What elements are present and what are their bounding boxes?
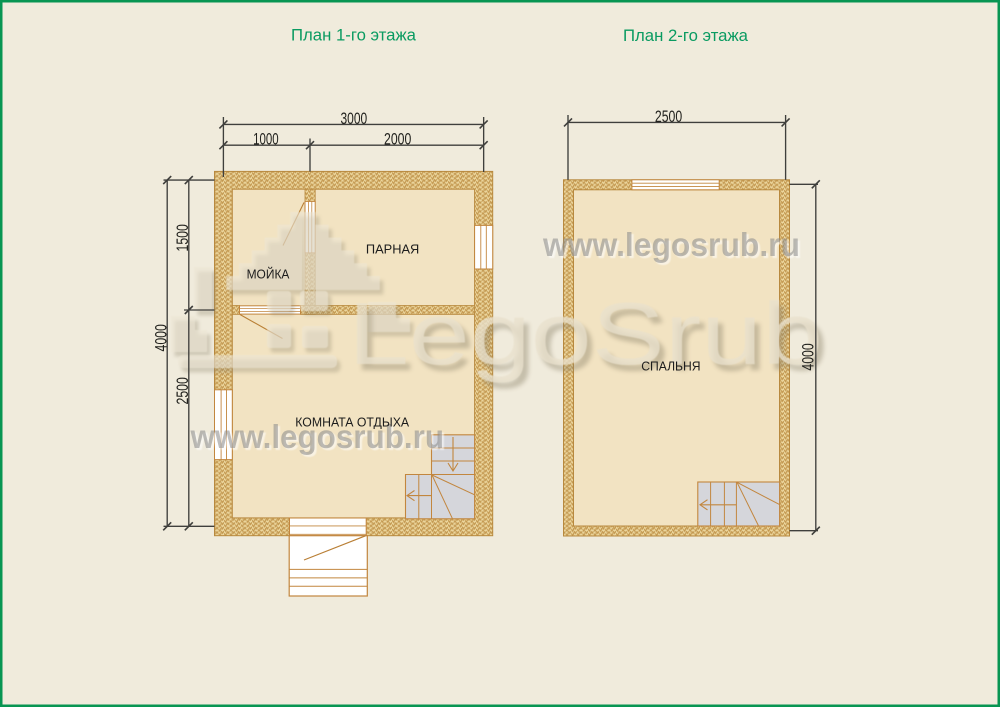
svg-text:КОМНАТА ОТДЫХА: КОМНАТА ОТДЫХА xyxy=(295,414,409,429)
svg-text:4000: 4000 xyxy=(799,343,818,370)
svg-text:1000: 1000 xyxy=(253,130,279,149)
svg-text:ПАРНАЯ: ПАРНАЯ xyxy=(366,241,419,256)
svg-text:LegoSrub: LegoSrub xyxy=(348,284,823,383)
svg-text:2500: 2500 xyxy=(655,107,682,126)
svg-text:План 2-го этажа: План 2-го этажа xyxy=(623,27,749,45)
svg-text:2000: 2000 xyxy=(384,130,411,149)
svg-text:4000: 4000 xyxy=(152,324,171,351)
svg-text:www.legosrub.ru: www.legosrub.ru xyxy=(542,226,800,263)
svg-text:2500: 2500 xyxy=(173,377,192,404)
svg-text:План 1-го этажа: План 1-го этажа xyxy=(291,27,417,45)
svg-text:МОЙКА: МОЙКА xyxy=(247,266,290,281)
svg-text:3000: 3000 xyxy=(341,109,368,128)
svg-text:СПАЛЬНЯ: СПАЛЬНЯ xyxy=(641,359,700,374)
svg-text:1500: 1500 xyxy=(173,224,192,251)
